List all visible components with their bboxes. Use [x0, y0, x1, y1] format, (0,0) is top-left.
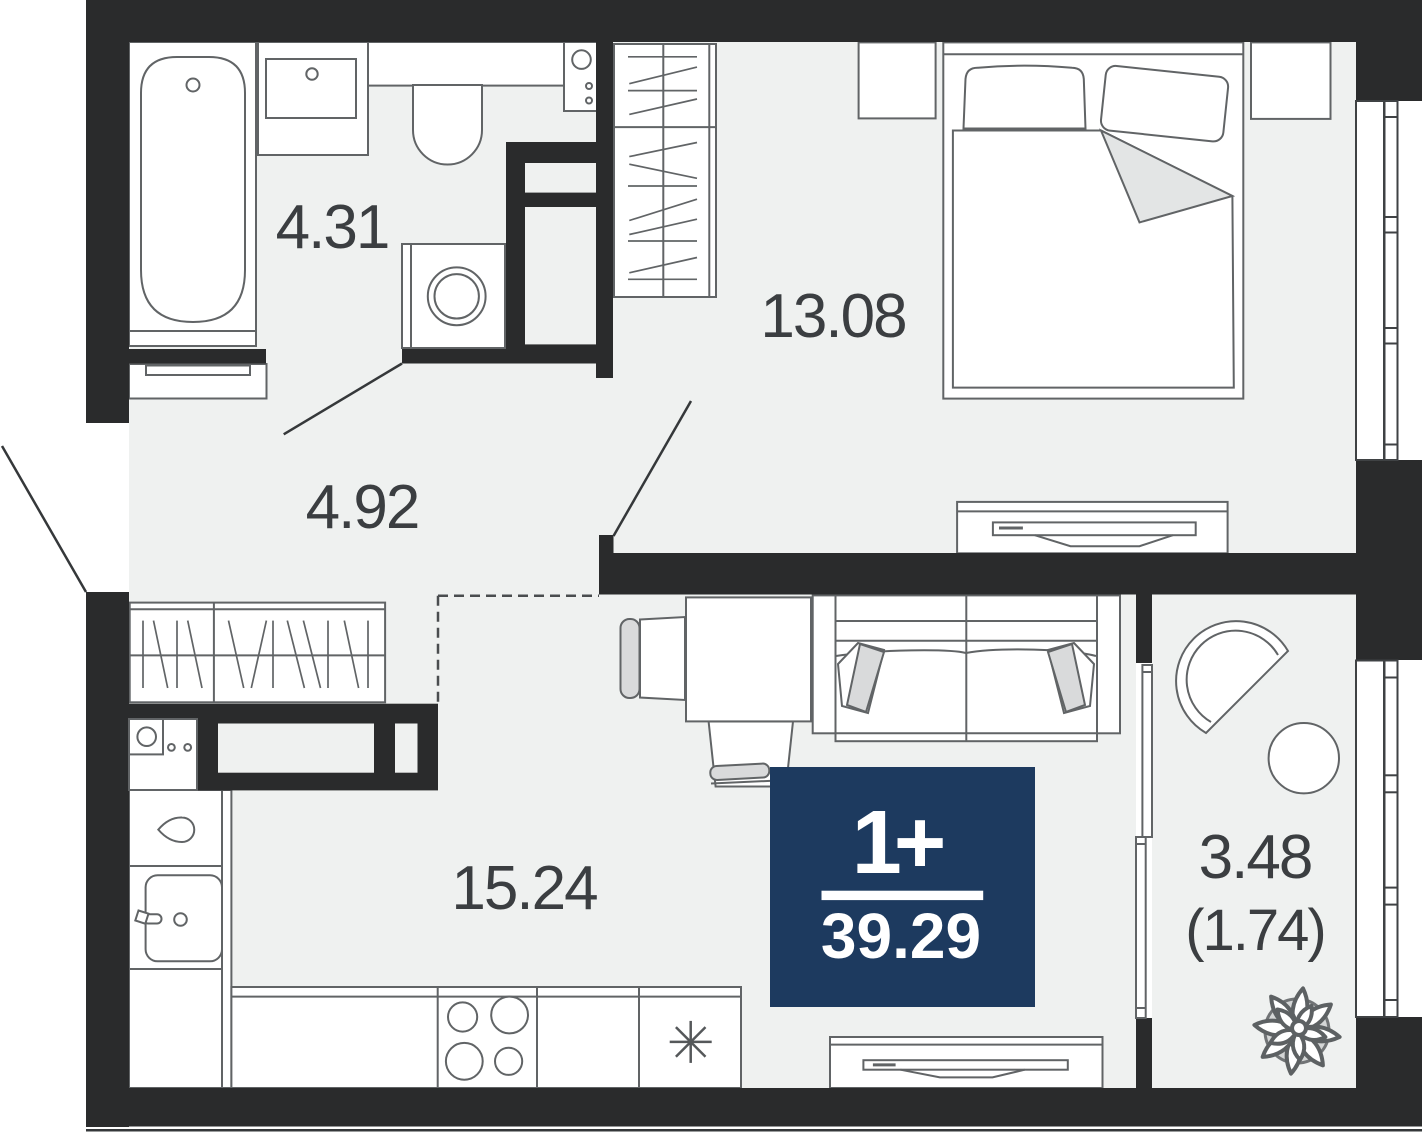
- svg-text:15.24: 15.24: [451, 854, 597, 923]
- svg-text:39.29: 39.29: [821, 900, 981, 972]
- svg-text:1+: 1+: [852, 793, 943, 893]
- svg-text:(1.74): (1.74): [1185, 898, 1325, 963]
- svg-text:13.08: 13.08: [760, 282, 905, 351]
- svg-text:4.92: 4.92: [306, 473, 419, 542]
- svg-text:3.48: 3.48: [1199, 823, 1312, 892]
- svg-text:4.31: 4.31: [276, 193, 389, 262]
